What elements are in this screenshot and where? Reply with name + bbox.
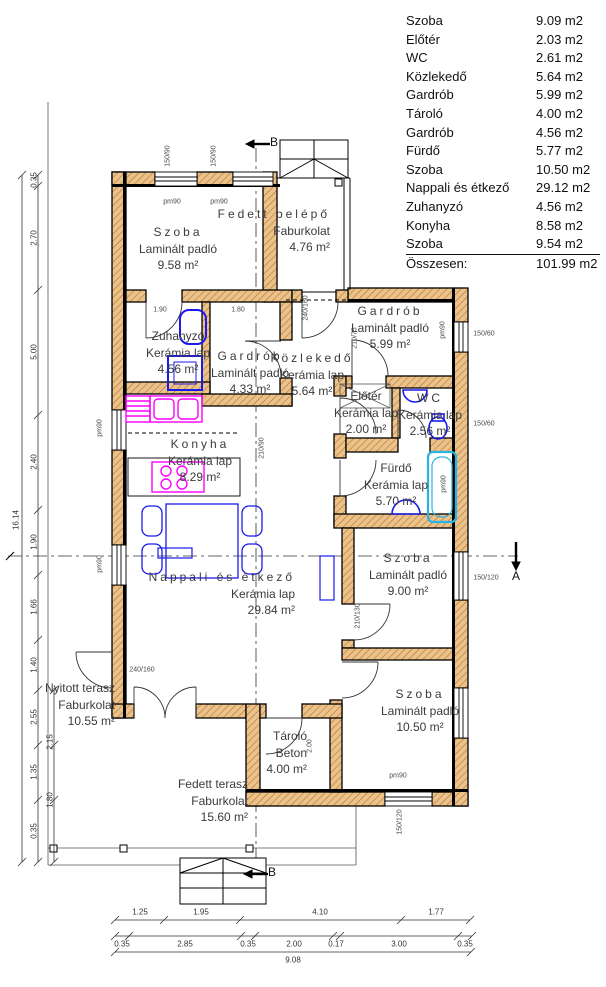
- room-area: 4.76 m²: [210, 239, 330, 256]
- door-size-label: 240/160: [129, 667, 154, 674]
- legend-row: Nappali és étkező29.12 m2: [406, 179, 600, 198]
- legend-room-area: 8.58 m2: [536, 217, 600, 236]
- room-floor: Faburkolat: [210, 223, 330, 240]
- room-label-szoba3: Szoba Laminált padló 10.50 m²: [360, 686, 480, 736]
- dimension-label: 0.35: [30, 823, 39, 839]
- dimension-label: 2.70: [30, 230, 39, 246]
- inner-dim-label: 1.80: [231, 307, 245, 314]
- dimension-label: 1.40: [30, 657, 39, 673]
- room-label-fedett-belepo: Fedett belépő Faburkolat 4.76 m²: [210, 206, 330, 256]
- room-floor: Kerámia lap: [140, 453, 260, 470]
- legend-room-area: 9.09 m2: [536, 12, 600, 31]
- canopy-top: [280, 140, 348, 178]
- room-floor: Kerámia lap: [252, 367, 372, 384]
- legend-room-area: 4.00 m2: [536, 105, 600, 124]
- dimension-label: 2.15: [46, 734, 55, 750]
- room-name: Tároló: [207, 728, 307, 745]
- legend-total-row: Összesen:101.99 m2: [406, 255, 600, 274]
- legend-row: Előtér2.03 m2: [406, 31, 600, 50]
- dimension-label: 5.00: [30, 344, 39, 360]
- legend-room-area: 2.61 m2: [536, 49, 600, 68]
- room-area: 29.84 m²: [145, 602, 295, 619]
- legend-room-name: Konyha: [406, 217, 536, 236]
- legend-room-area: 10.50 m2: [536, 161, 600, 180]
- room-area: 15.60 m²: [118, 809, 248, 826]
- stairs-bottom: [180, 858, 266, 904]
- inner-dim-label: 2.00: [307, 739, 314, 753]
- room-floor: Laminált padló: [330, 320, 450, 337]
- legend-room-name: Fürdő: [406, 142, 536, 161]
- legend-row: Szoba10.50 m2: [406, 161, 600, 180]
- inner-dim-label: 1.90: [153, 307, 167, 314]
- room-name: Szoba: [360, 686, 480, 703]
- room-name: Konyha: [140, 436, 260, 453]
- dimension-total-label: 9.08: [285, 956, 301, 965]
- room-area-legend: Szoba9.09 m2 Előtér2.03 m2 WC2.61 m2 Köz…: [406, 12, 600, 273]
- dimension-label: 4.10: [312, 908, 328, 917]
- legend-row: Szoba9.09 m2: [406, 12, 600, 31]
- room-floor: Laminált padló: [360, 703, 480, 720]
- room-label-konyha: Konyha Kerámia lap 8.29 m²: [140, 436, 260, 486]
- legend-room-area: 4.56 m2: [536, 198, 600, 217]
- room-area: 2.56 m²: [370, 423, 490, 440]
- legend-room-name: WC: [406, 49, 536, 68]
- legend-row: Szoba9.54 m2: [406, 235, 600, 255]
- dimension-total-label: 16.14: [12, 510, 21, 530]
- dimension-label: 0.35: [240, 940, 256, 949]
- legend-room-name: Szoba: [406, 235, 536, 254]
- terrace-posts: [50, 845, 253, 852]
- room-label-wc: WC Kerámia lap 2.56 m²: [370, 390, 490, 440]
- dimension-label: 0.17: [328, 940, 344, 949]
- door-size-label: 210/90: [259, 437, 266, 458]
- parapet-label: pm90: [440, 321, 447, 339]
- dimension-label: 1.25: [132, 908, 148, 917]
- section-marker-a: A: [512, 569, 520, 583]
- dining-table-fixture: [142, 504, 262, 578]
- dimension-label: 1.90: [30, 534, 39, 550]
- legend-room-name: Gardrób: [406, 124, 536, 143]
- door-size-label: 210/75: [352, 327, 359, 348]
- legend-room-name: Nappali és étkező: [406, 179, 536, 198]
- dimension-label: 3.00: [391, 940, 407, 949]
- dimension-label: 0.35: [30, 172, 39, 188]
- section-marker-b: B: [268, 865, 276, 879]
- window-size-label: 150/120: [473, 575, 498, 582]
- room-label-gardrob2: Gardrób Laminált padló 5.99 m²: [330, 303, 450, 353]
- dimension-label: 1.35: [30, 764, 39, 780]
- parapet-label: pm90: [97, 555, 104, 573]
- room-area: 9.00 m²: [348, 583, 468, 600]
- legend-row: Zuhanyzó4.56 m2: [406, 198, 600, 217]
- room-floor: Beton: [207, 745, 307, 762]
- door-size-label: 240/160: [303, 295, 310, 320]
- window-size-label: 150/90: [211, 145, 218, 166]
- dimension-label: 1.95: [193, 908, 209, 917]
- legend-total-label: Összesen:: [406, 255, 536, 274]
- legend-row: Konyha8.58 m2: [406, 217, 600, 236]
- dimension-label: 2.55: [30, 709, 39, 725]
- room-name: Fedett belépő: [210, 206, 330, 223]
- room-area: 5.99 m²: [330, 336, 450, 353]
- legend-row: Fürdő5.77 m2: [406, 142, 600, 161]
- legend-row: Gardrób4.56 m2: [406, 124, 600, 143]
- legend-room-area: 4.56 m2: [536, 124, 600, 143]
- legend-row: Közlekedő5.64 m2: [406, 68, 600, 87]
- room-area: 5.70 m²: [336, 493, 456, 510]
- dimension-label: 1.80: [46, 792, 55, 808]
- room-name: Nyitott terasz: [15, 680, 115, 697]
- legend-room-name: Zuhanyzó: [406, 198, 536, 217]
- legend-room-name: Szoba: [406, 161, 536, 180]
- dimension-label: 0.35: [457, 940, 473, 949]
- legend-room-area: 29.12 m2: [536, 179, 600, 198]
- legend-room-area: 5.99 m2: [536, 86, 600, 105]
- legend-room-name: Szoba: [406, 12, 536, 31]
- room-floor: Kerámia lap: [145, 586, 295, 603]
- room-area: 8.29 m²: [140, 469, 260, 486]
- room-area: 10.50 m²: [360, 719, 480, 736]
- parapet-label: pm90: [441, 475, 448, 493]
- room-label-furdo: Fürdő Kerámia lap 5.70 m²: [336, 460, 456, 510]
- room-name: WC: [370, 390, 490, 407]
- room-floor: Laminált padló: [348, 567, 468, 584]
- dimension-label: 2.40: [30, 454, 39, 470]
- legend-room-name: Tároló: [406, 105, 536, 124]
- room-floor: Kerámia lap: [336, 477, 456, 494]
- section-marker-b: B: [270, 135, 278, 149]
- legend-room-area: 5.64 m2: [536, 68, 600, 87]
- room-label-nappali: Nappali és étkező Kerámia lap 29.84 m²: [145, 569, 295, 619]
- room-area: 9.58 m²: [118, 257, 238, 274]
- dimension-label: 1.66: [30, 599, 39, 615]
- legend-room-area: 9.54 m2: [536, 235, 600, 254]
- legend-row: Tároló4.00 m2: [406, 105, 600, 124]
- window-size-label: 150/90: [165, 145, 172, 166]
- parapet-label: pm90: [97, 419, 104, 437]
- parapet-label: pm90: [389, 773, 407, 780]
- legend-row: Gardrób5.99 m2: [406, 86, 600, 105]
- room-name: Zuhanyzó: [118, 328, 238, 345]
- room-name: Fürdő: [336, 460, 456, 477]
- room-floor: Faburkolat: [118, 793, 248, 810]
- parapet-label: pm90: [210, 199, 228, 206]
- room-label-tarolo: Tároló Beton 4.00 m²: [207, 728, 307, 778]
- legend-room-name: Gardrób: [406, 86, 536, 105]
- room-label-szoba2: Szoba Laminált padló 9.00 m²: [348, 550, 468, 600]
- dimension-label: 2.85: [177, 940, 193, 949]
- legend-room-area: 2.03 m2: [536, 31, 600, 50]
- dimension-label: 1.77: [428, 908, 444, 917]
- dimension-label: 0.35: [114, 940, 130, 949]
- floorplan-page: Szoba9.09 m2 Előtér2.03 m2 WC2.61 m2 Köz…: [0, 0, 606, 987]
- room-label-fedett-terasz: Fedett terasz Faburkolat 15.60 m²: [118, 776, 248, 826]
- room-name: Szoba: [348, 550, 468, 567]
- window-size-label: 150/60: [473, 421, 494, 428]
- room-name: Gardrób: [330, 303, 450, 320]
- window-size-label: 150/120: [397, 809, 404, 834]
- parapet-label: pm90: [163, 199, 181, 206]
- window-size-label: 150/60: [473, 331, 494, 338]
- room-floor: Kerámia lap: [370, 407, 490, 424]
- legend-room-name: Közlekedő: [406, 68, 536, 87]
- dimension-label: 2.00: [286, 940, 302, 949]
- kitchen-sink-fixture: [126, 396, 202, 422]
- door-size-label: 210/130: [355, 603, 362, 628]
- room-name: Fedett terasz: [118, 776, 248, 793]
- legend-row: WC2.61 m2: [406, 49, 600, 68]
- legend-room-name: Előtér: [406, 31, 536, 50]
- legend-total-value: 101.99 m2: [536, 255, 600, 274]
- room-name: Nappali és étkező: [145, 569, 295, 586]
- legend-room-area: 5.77 m2: [536, 142, 600, 161]
